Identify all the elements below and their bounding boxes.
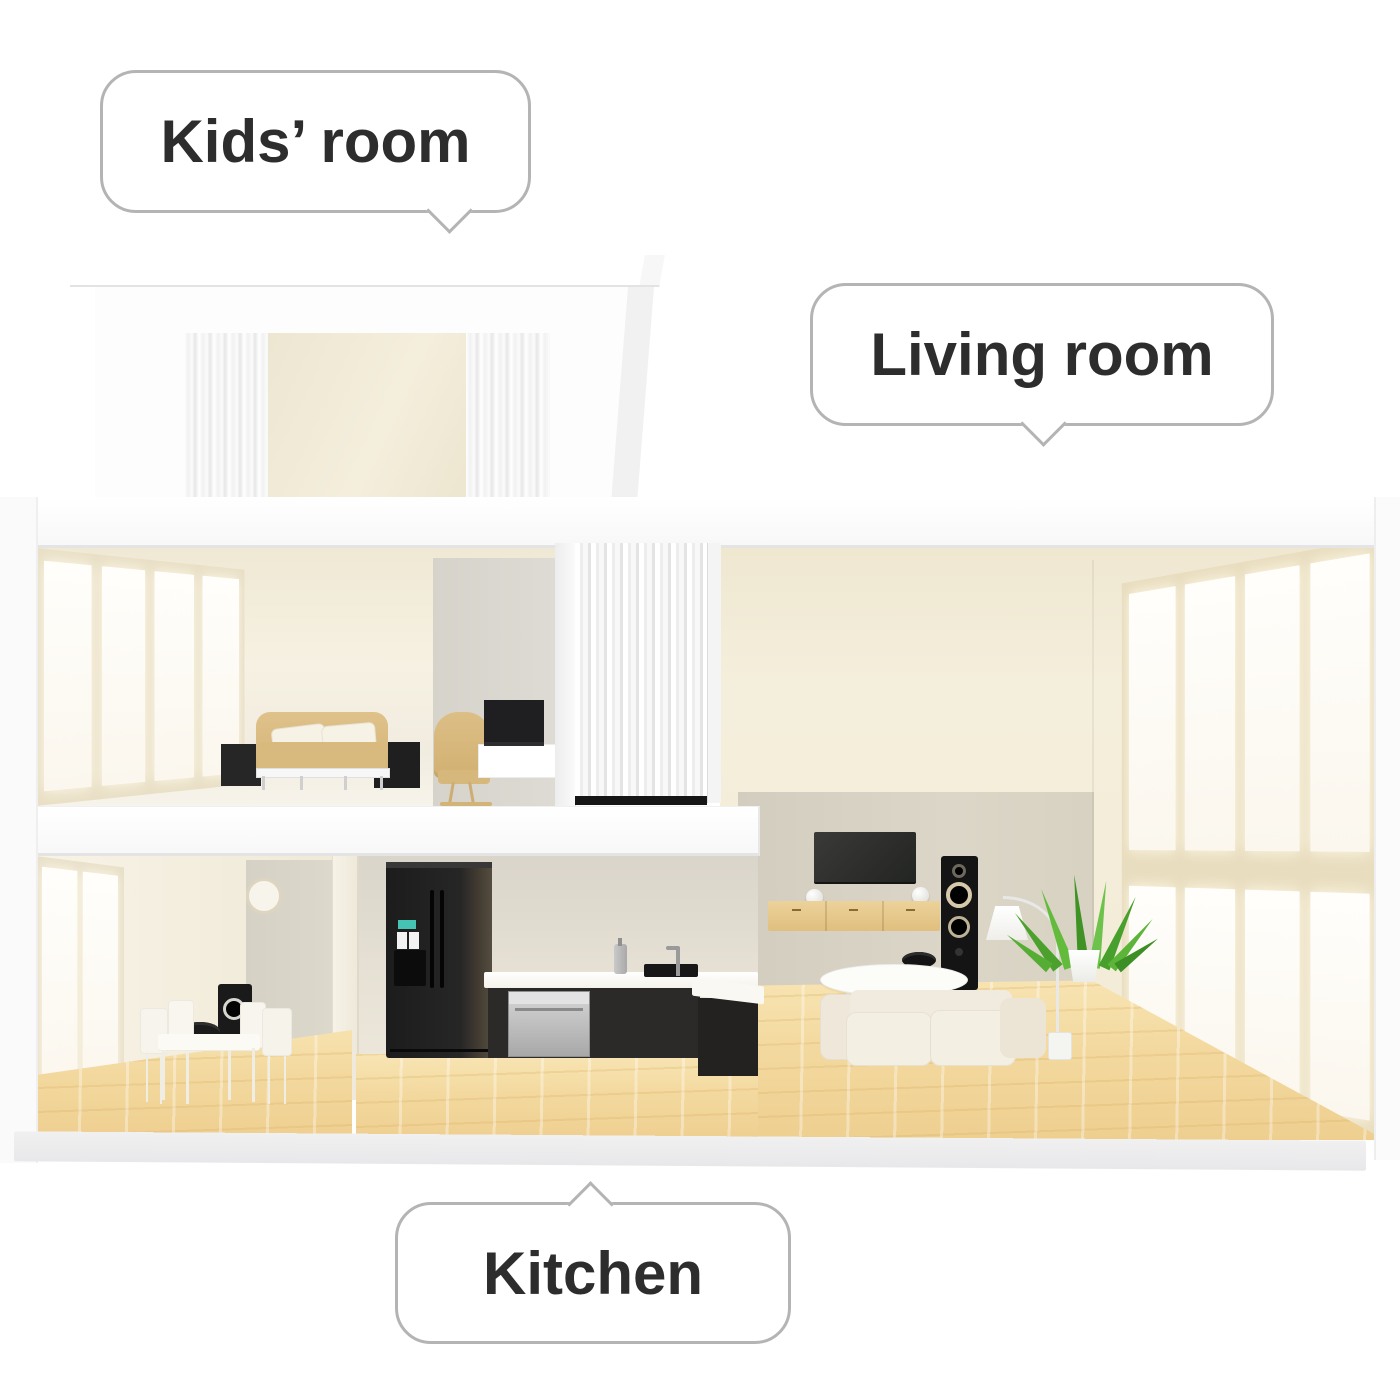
wall-clock bbox=[246, 878, 282, 914]
callout-kitchen-label: Kitchen bbox=[483, 1239, 703, 1308]
shelf-divider bbox=[882, 901, 884, 931]
speaker-tweeter bbox=[952, 864, 966, 878]
soap-dispenser bbox=[614, 944, 627, 974]
window-pane bbox=[1129, 586, 1176, 850]
callout-kids-room: Kids’ room bbox=[100, 70, 531, 213]
speaker-driver bbox=[946, 882, 972, 908]
floor-lamp-base bbox=[1048, 1032, 1072, 1060]
dishwasher bbox=[508, 991, 590, 1057]
island-cabinet bbox=[698, 998, 758, 1076]
bedside-cabinet-left bbox=[221, 744, 261, 786]
sink-basin bbox=[644, 964, 698, 977]
dining-table-leg bbox=[162, 1050, 165, 1100]
window-pane bbox=[102, 566, 145, 786]
window-pane bbox=[44, 561, 92, 791]
outer-wall-right bbox=[1374, 497, 1400, 1160]
bedroom-window-wall bbox=[36, 548, 245, 806]
window-pane bbox=[1185, 576, 1235, 851]
wall-shelf bbox=[768, 901, 940, 931]
callout-kitchen: Kitchen bbox=[395, 1202, 791, 1344]
daybed-leg bbox=[380, 776, 383, 790]
roof-cornice-side bbox=[639, 255, 665, 287]
partition-curtain-shadow bbox=[575, 796, 707, 805]
callout-tail bbox=[426, 187, 473, 234]
daybed-leg bbox=[262, 776, 265, 790]
smart-home-cutaway-illustration: Kids’ room Living room Kitchen bbox=[0, 0, 1400, 1400]
kids-room-curtain-left bbox=[184, 333, 268, 497]
soap-dispenser-nozzle bbox=[618, 938, 622, 946]
floor-slab-upper bbox=[0, 497, 1400, 548]
dining-chair-leg bbox=[160, 1056, 162, 1104]
speaker-knob bbox=[955, 948, 963, 956]
speaker-driver bbox=[948, 916, 970, 938]
window-pane bbox=[1245, 565, 1300, 851]
window-pane bbox=[42, 867, 77, 1104]
roof-cornice bbox=[70, 253, 650, 287]
shelf-handle bbox=[906, 909, 915, 911]
refrigerator bbox=[386, 862, 492, 1058]
window-pane bbox=[155, 571, 195, 781]
faucet-spout bbox=[666, 946, 680, 950]
wall-tv bbox=[814, 832, 916, 884]
daybed-leg bbox=[344, 776, 347, 790]
daybed-leg bbox=[300, 776, 303, 790]
shelf-divider bbox=[825, 901, 827, 931]
refrigerator-top bbox=[386, 862, 492, 868]
callout-tail bbox=[567, 1181, 614, 1228]
partition-curtain bbox=[575, 543, 707, 798]
callout-kids-room-label: Kids’ room bbox=[160, 107, 470, 176]
curtain-beam-right bbox=[707, 543, 721, 803]
dining-chair-leg bbox=[268, 1054, 270, 1104]
refrigerator-vent bbox=[390, 1049, 488, 1052]
daybed-seat bbox=[258, 742, 386, 770]
callout-tail bbox=[1020, 400, 1067, 447]
curtain-beam-left bbox=[555, 543, 576, 806]
bedroom-tv bbox=[484, 700, 544, 746]
window-pane bbox=[1310, 892, 1369, 1121]
shelf-handle bbox=[792, 909, 801, 911]
dining-chair-leg bbox=[284, 1056, 286, 1104]
refrigerator-handle bbox=[440, 890, 444, 988]
outer-wall-left bbox=[0, 497, 38, 1163]
kids-room-curtain-right bbox=[466, 333, 550, 497]
faucet bbox=[676, 948, 680, 976]
callout-living-room-label: Living room bbox=[870, 320, 1213, 389]
dining-table-leg bbox=[228, 1050, 231, 1100]
water-dispenser bbox=[394, 950, 426, 986]
refrigerator-handle bbox=[430, 890, 434, 988]
dishwasher-controls bbox=[509, 992, 589, 1004]
dining-table-leg bbox=[186, 1052, 189, 1104]
floor-slab-middle bbox=[0, 806, 760, 856]
sofa-seat bbox=[846, 1012, 932, 1066]
dispenser-button bbox=[409, 932, 419, 949]
dining-table-leg bbox=[252, 1048, 255, 1102]
sofa-module bbox=[1000, 998, 1046, 1058]
dispenser-button bbox=[397, 932, 407, 949]
callout-living-room: Living room bbox=[810, 283, 1274, 426]
dishwasher-handle bbox=[515, 1008, 583, 1011]
daybed-frame bbox=[256, 768, 390, 778]
shelf-handle bbox=[849, 909, 858, 911]
dining-table-top bbox=[158, 1034, 260, 1050]
dining-chair-back bbox=[262, 1008, 292, 1056]
refrigerator-display bbox=[398, 920, 416, 929]
window-pane bbox=[1310, 553, 1369, 852]
dining-chair-leg bbox=[146, 1052, 148, 1102]
